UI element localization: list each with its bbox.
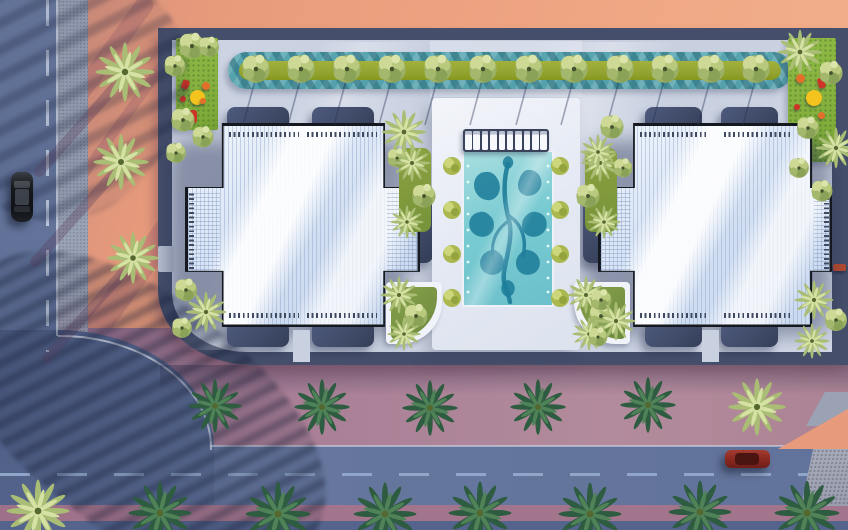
car-cabin <box>735 453 759 465</box>
lounger-bay <box>499 131 514 150</box>
planter <box>585 148 617 232</box>
entrance-walkway <box>293 330 310 362</box>
lounger <box>515 131 522 150</box>
play-equipment <box>189 110 197 123</box>
small-red-car <box>833 264 846 271</box>
planter-greenery <box>579 287 625 339</box>
jogging-track <box>228 52 792 89</box>
pool-loungers <box>463 129 549 152</box>
planter-greenery <box>391 287 437 339</box>
roof-vents <box>640 313 706 318</box>
site-plan-render <box>0 0 848 530</box>
rear-window <box>14 206 30 212</box>
lounger-bay <box>482 131 497 150</box>
roof-vents <box>724 313 792 318</box>
roof-vents <box>640 132 706 137</box>
play-equipment <box>796 74 805 83</box>
lounger <box>499 131 506 150</box>
play-equipment <box>202 82 210 90</box>
roof-vents <box>724 132 792 137</box>
roof-vents <box>189 191 194 269</box>
lounger <box>482 131 489 150</box>
roof-vents <box>307 313 377 318</box>
jogging-track-lawn <box>239 61 781 80</box>
roof-vents <box>229 313 299 318</box>
play-equipment <box>818 112 825 119</box>
lounger <box>532 131 539 150</box>
lounger <box>465 131 472 150</box>
lounger <box>540 131 547 150</box>
lounger <box>473 131 480 150</box>
lounger <box>490 131 497 150</box>
windshield <box>14 181 30 188</box>
roof-vents <box>824 191 829 269</box>
pool-glare <box>464 152 552 305</box>
planter <box>399 148 431 232</box>
black-car <box>11 172 33 222</box>
red-car <box>725 450 770 468</box>
entrance-walkway <box>702 330 719 362</box>
play-equipment <box>794 104 800 110</box>
play-equipment <box>817 77 826 88</box>
swimming-pool <box>462 150 554 307</box>
lounger-bay <box>532 131 547 150</box>
play-equipment <box>806 90 822 106</box>
lounger <box>507 131 514 150</box>
roof-vents <box>229 132 299 137</box>
car-roof <box>15 189 29 205</box>
play-equipment <box>200 98 206 104</box>
roof-vents <box>307 132 377 137</box>
lounger-bay <box>515 131 530 150</box>
lounger <box>524 131 531 150</box>
lounger-bay <box>465 131 480 150</box>
